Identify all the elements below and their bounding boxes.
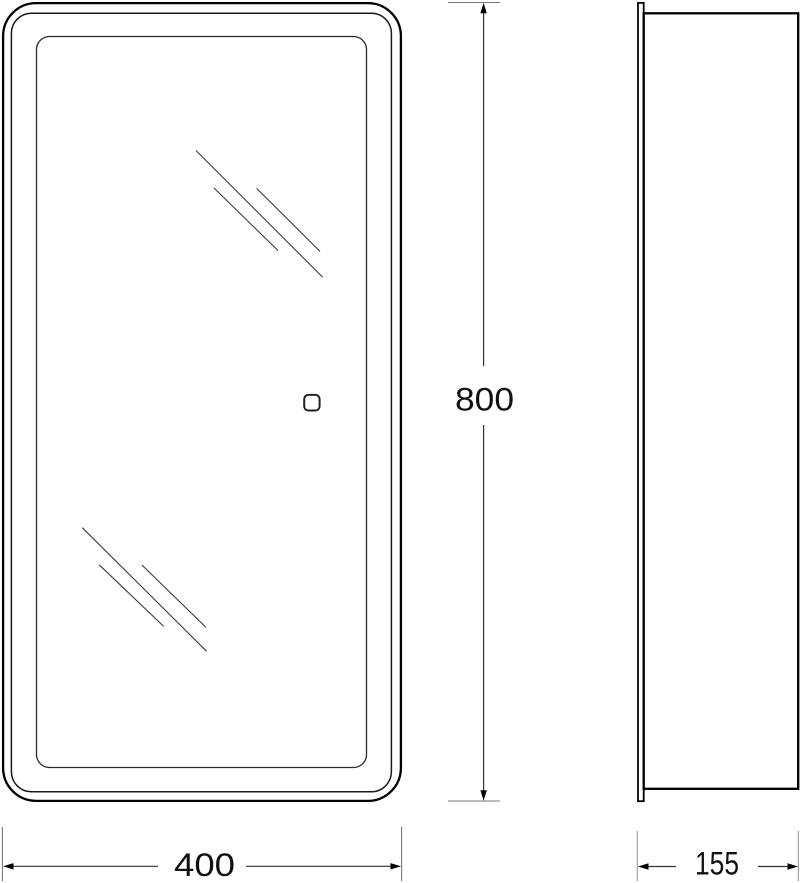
svg-text:400: 400 <box>174 847 235 883</box>
svg-text:800: 800 <box>455 382 514 418</box>
svg-text:155: 155 <box>695 846 739 882</box>
